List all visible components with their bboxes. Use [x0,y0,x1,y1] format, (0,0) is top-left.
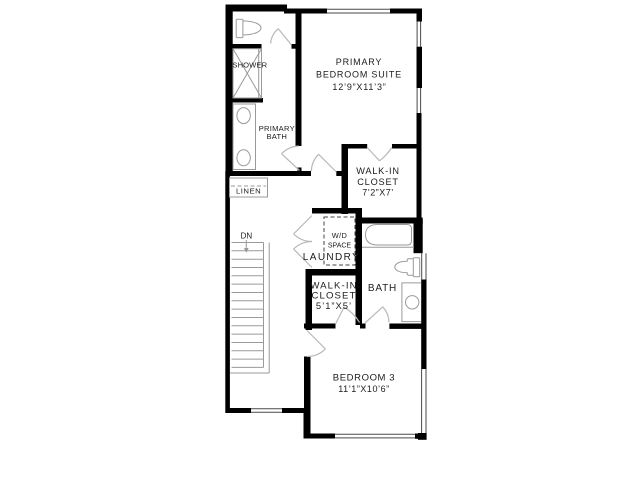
svg-text:7’2”X7’: 7’2”X7’ [362,188,394,198]
svg-text:BEDROOM 3: BEDROOM 3 [333,373,395,384]
svg-text:BATH: BATH [266,132,287,141]
svg-text:CLOSET: CLOSET [357,177,399,187]
svg-text:BATH: BATH [368,283,397,294]
svg-text:DN: DN [241,232,253,241]
svg-text:LINEN: LINEN [236,186,261,195]
svg-text:5’1”X5’: 5’1”X5’ [316,300,352,311]
svg-text:LAUNDRY: LAUNDRY [303,252,360,263]
svg-text:SPACE: SPACE [328,242,352,249]
svg-text:WALK-IN: WALK-IN [310,280,357,291]
svg-text:W/D: W/D [332,231,348,240]
svg-text:11’1”X10’6”: 11’1”X10’6” [338,384,389,394]
svg-text:WALK-IN: WALK-IN [356,166,400,176]
svg-text:BEDROOM SUITE: BEDROOM SUITE [316,70,402,80]
svg-text:SHOWER: SHOWER [232,61,267,70]
svg-text:PRIMARY: PRIMARY [336,57,382,67]
svg-text:12’9”X11’3”: 12’9”X11’3” [332,82,386,92]
